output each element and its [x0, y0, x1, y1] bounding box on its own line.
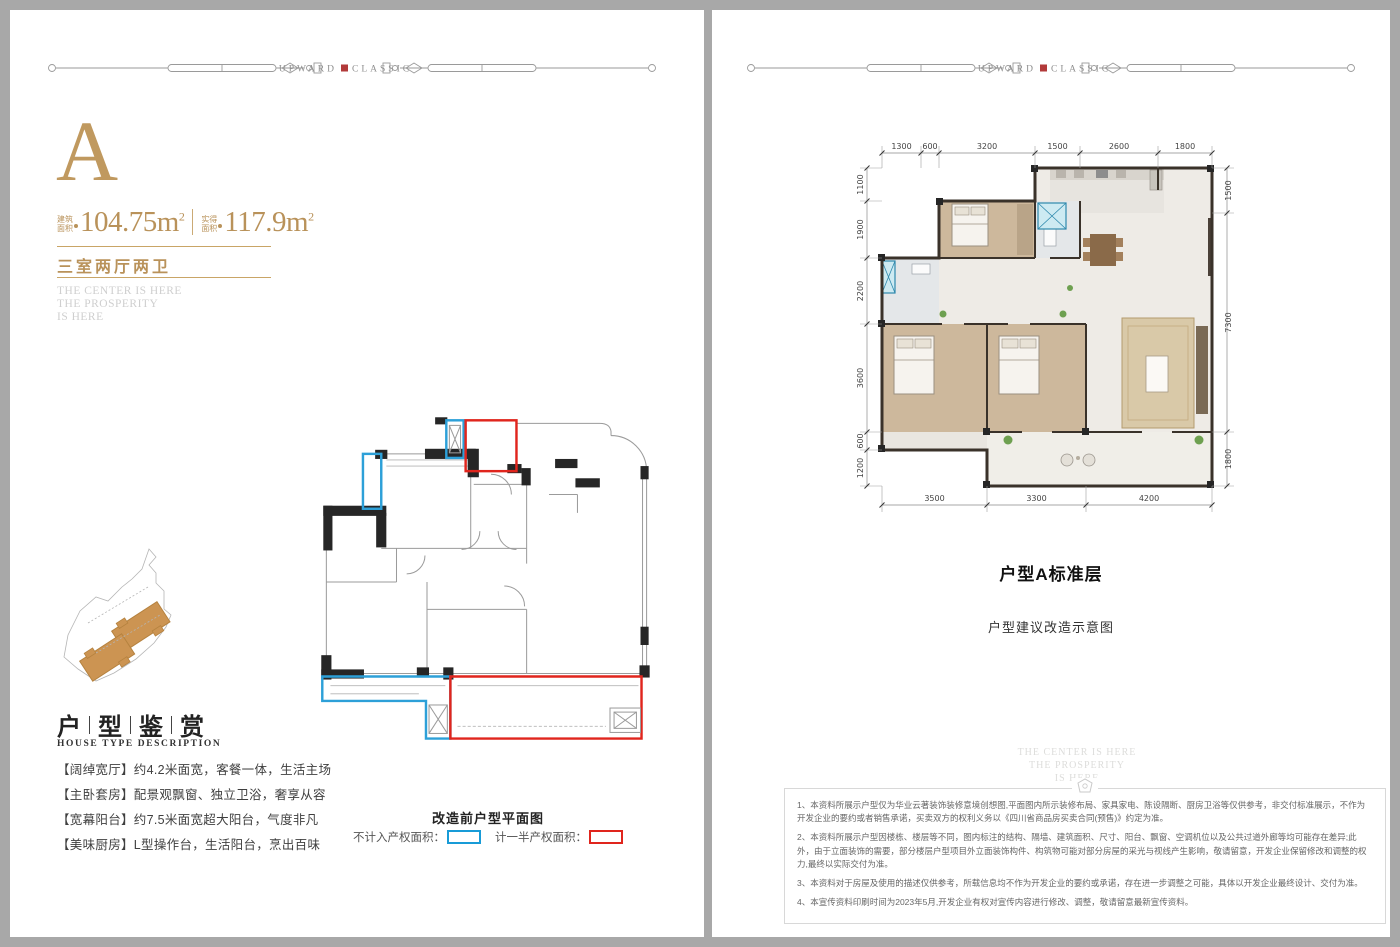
feature-item: 【阔绰宽厅】约4.2米面宽，客餐一体，生活主场: [57, 758, 331, 783]
brochure-page-left: UPWARD CLASSIC A 建筑 面积 104.75m2 实得 面积 11: [10, 10, 704, 937]
section-subtitle: HOUSE TYPE DESCRIPTION: [57, 739, 221, 749]
brochure-page-right: UPWARD CLASSIC: [712, 10, 1390, 937]
unit-type-letter: A: [56, 108, 118, 194]
disclaimer-item: 3、本资料对于房屋及使用的描述仅供参考，所载信息均不作为开发企业的要约或承诺，存…: [797, 877, 1373, 890]
brand-word-right: CLASSIC: [352, 65, 412, 75]
tagline: THE CENTER IS HERE THE PROSPERITY IS HER…: [57, 285, 182, 324]
site-plan: [52, 535, 202, 700]
legend-swatch-blue: [447, 830, 481, 844]
actual-area-label: 实得 面积: [201, 215, 217, 233]
svg-text:1500: 1500: [1224, 180, 1233, 200]
floor-plan-rendered: 1300600320015002600180011001900220036006…: [812, 108, 1272, 520]
layout-type: 三室两厅两卫: [57, 253, 171, 277]
built-area-value: 104.75m2: [80, 208, 184, 237]
brand-word-right: CLASSIC: [1051, 65, 1111, 75]
disclaimer-item: 4、本宣传资料印刷时间为2023年5月,开发企业有权对宣传内容进行修改、调整，敬…: [797, 896, 1373, 909]
bed: [999, 336, 1039, 394]
legend-label-red: 计一半产权面积：: [495, 829, 587, 845]
actual-area-value: 117.9m2: [224, 208, 313, 237]
skylight-window: [882, 261, 895, 293]
feature-list: 【阔绰宽厅】约4.2米面宽，客餐一体，生活主场 【主卧套房】配景观飘窗、独立卫浴…: [57, 758, 331, 858]
disclaimer-item: 1、本资料所展示户型仅为华业云著装饰装修意境创想图,平面图内所示装修布局、家具家…: [797, 799, 1373, 825]
dot-icon: [218, 224, 222, 228]
svg-text:1800: 1800: [1175, 142, 1195, 151]
feature-item: 【主卧套房】配景观飘窗、独立卫浴，奢享从容: [57, 783, 331, 808]
svg-text:1800: 1800: [1224, 449, 1233, 469]
gold-rule: [57, 246, 271, 247]
brand-word-left: UPWARD: [978, 65, 1036, 75]
title-divider: [89, 716, 90, 734]
section-title: 户型鉴赏: [57, 707, 204, 742]
svg-text:1100: 1100: [856, 174, 865, 194]
plan-caption: 改造前户型平面图: [305, 808, 671, 827]
title-divider: [130, 716, 131, 734]
disclaimer-item: 2、本资料所展示户型因楼栋、楼层等不同，图内标注的结构、隔墙、建筑面积、尺寸、阳…: [797, 831, 1373, 871]
emblem-icon: [1072, 778, 1098, 794]
header-ornament: UPWARD CLASSIC: [745, 58, 1357, 78]
svg-text:1900: 1900: [856, 219, 865, 239]
plan-legend: 不计入产权面积： 计一半产权面积：: [305, 829, 671, 845]
brand-accent-square: [1040, 65, 1047, 72]
actual-area: 实得 面积 117.9m2: [201, 208, 313, 237]
svg-text:3200: 3200: [977, 142, 997, 151]
feature-item: 【宽幕阳台】约7.5米面宽超大阳台，气度非凡: [57, 808, 331, 833]
plan-subtitle: 户型建议改造示意图: [712, 617, 1390, 636]
disclaimer-box: 1、本资料所展示户型仅为华业云著装饰装修意境创想图,平面图内所示装修布局、家具家…: [784, 788, 1386, 924]
svg-text:2600: 2600: [1109, 142, 1129, 151]
legend-label-blue: 不计入产权面积：: [353, 829, 445, 845]
divider: [192, 209, 193, 235]
svg-text:2200: 2200: [856, 281, 865, 301]
svg-text:3600: 3600: [856, 368, 865, 388]
legend-swatch-red: [589, 830, 623, 844]
header-ornament: UPWARD CLASSIC: [46, 58, 658, 78]
gold-rule: [57, 277, 271, 278]
title-divider: [171, 716, 172, 734]
bed: [894, 336, 934, 394]
area-figures: 建筑 面积 104.75m2 实得 面积 117.9m2: [57, 208, 314, 237]
floor-plan-schematic: [305, 398, 671, 770]
built-area: 建筑 面积 104.75m2: [57, 208, 184, 237]
brand-word-left: UPWARD: [279, 65, 337, 75]
skylight-window: [1038, 203, 1066, 229]
plan-title: 户型A标准层: [712, 560, 1390, 585]
svg-text:7300: 7300: [1224, 312, 1233, 332]
bed: [952, 204, 988, 246]
built-area-label: 建筑 面积: [57, 215, 73, 233]
svg-text:600: 600: [856, 433, 865, 448]
svg-text:4200: 4200: [1139, 494, 1159, 503]
svg-text:1500: 1500: [1047, 142, 1067, 151]
feature-item: 【美味厨房】L型操作台，生活阳台，烹出百味: [57, 833, 331, 858]
svg-text:1300: 1300: [891, 142, 911, 151]
dot-icon: [74, 224, 78, 228]
svg-text:600: 600: [922, 142, 937, 151]
svg-text:3500: 3500: [924, 494, 944, 503]
brand-accent-square: [341, 65, 348, 72]
svg-text:3300: 3300: [1026, 494, 1046, 503]
svg-text:1200: 1200: [856, 458, 865, 478]
